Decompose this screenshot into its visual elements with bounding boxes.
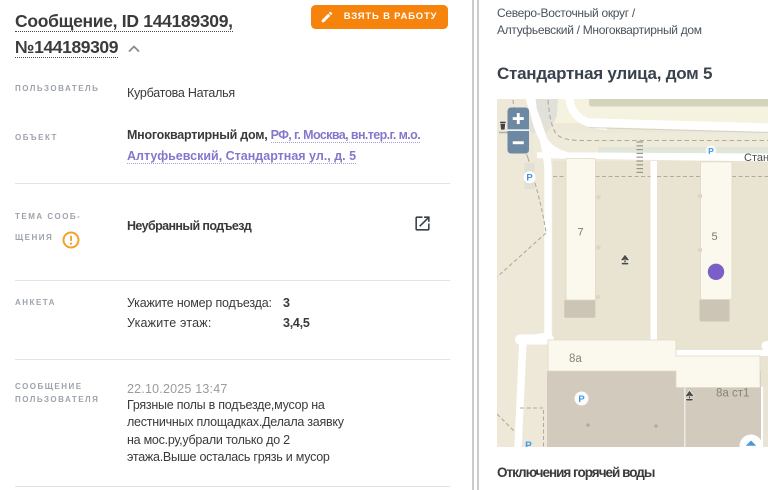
svg-text:5: 5 bbox=[711, 231, 717, 243]
svg-text:P: P bbox=[578, 394, 585, 405]
svg-text:P: P bbox=[526, 173, 533, 184]
svg-text:8а ст1: 8а ст1 bbox=[716, 388, 749, 400]
svg-text:P: P bbox=[525, 441, 532, 448]
svg-text:P: P bbox=[708, 146, 714, 156]
svg-text:7: 7 bbox=[577, 227, 583, 239]
svg-text:8а: 8а bbox=[569, 353, 582, 365]
svg-text:Стандартная: Стандартная bbox=[744, 152, 768, 164]
